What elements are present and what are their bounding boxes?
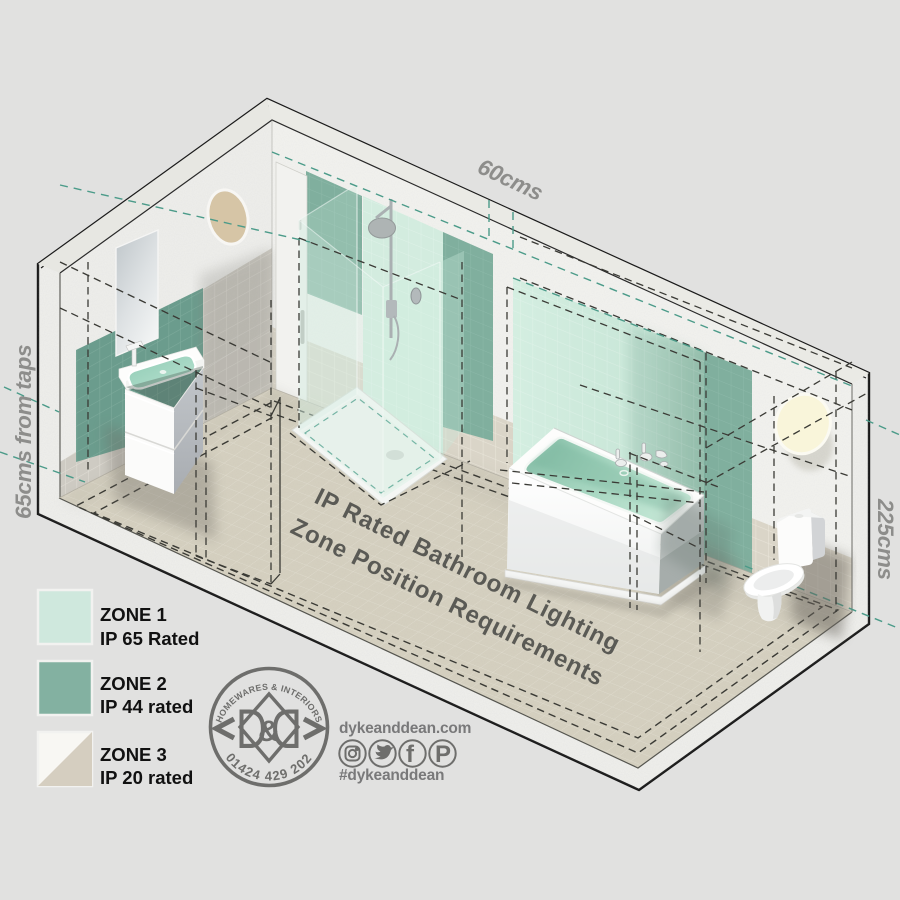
svg-text:ZONE 1: ZONE 1 <box>100 604 167 625</box>
svg-text:ZONE 2: ZONE 2 <box>100 673 167 694</box>
svg-text:IP 44 rated: IP 44 rated <box>100 696 193 717</box>
svg-text:IP 20 rated: IP 20 rated <box>100 767 193 788</box>
svg-text:IP 65 Rated: IP 65 Rated <box>100 628 199 649</box>
svg-text:&: & <box>258 715 280 748</box>
svg-text:#dykeanddean: #dykeanddean <box>339 767 444 784</box>
svg-text:dykeanddean.com: dykeanddean.com <box>339 720 471 737</box>
svg-text:225cms: 225cms <box>873 498 898 580</box>
svg-text:ZONE 3: ZONE 3 <box>100 744 167 765</box>
svg-text:P: P <box>435 741 451 768</box>
svg-text:65cms from taps: 65cms from taps <box>11 345 36 519</box>
svg-text:f: f <box>406 741 415 768</box>
